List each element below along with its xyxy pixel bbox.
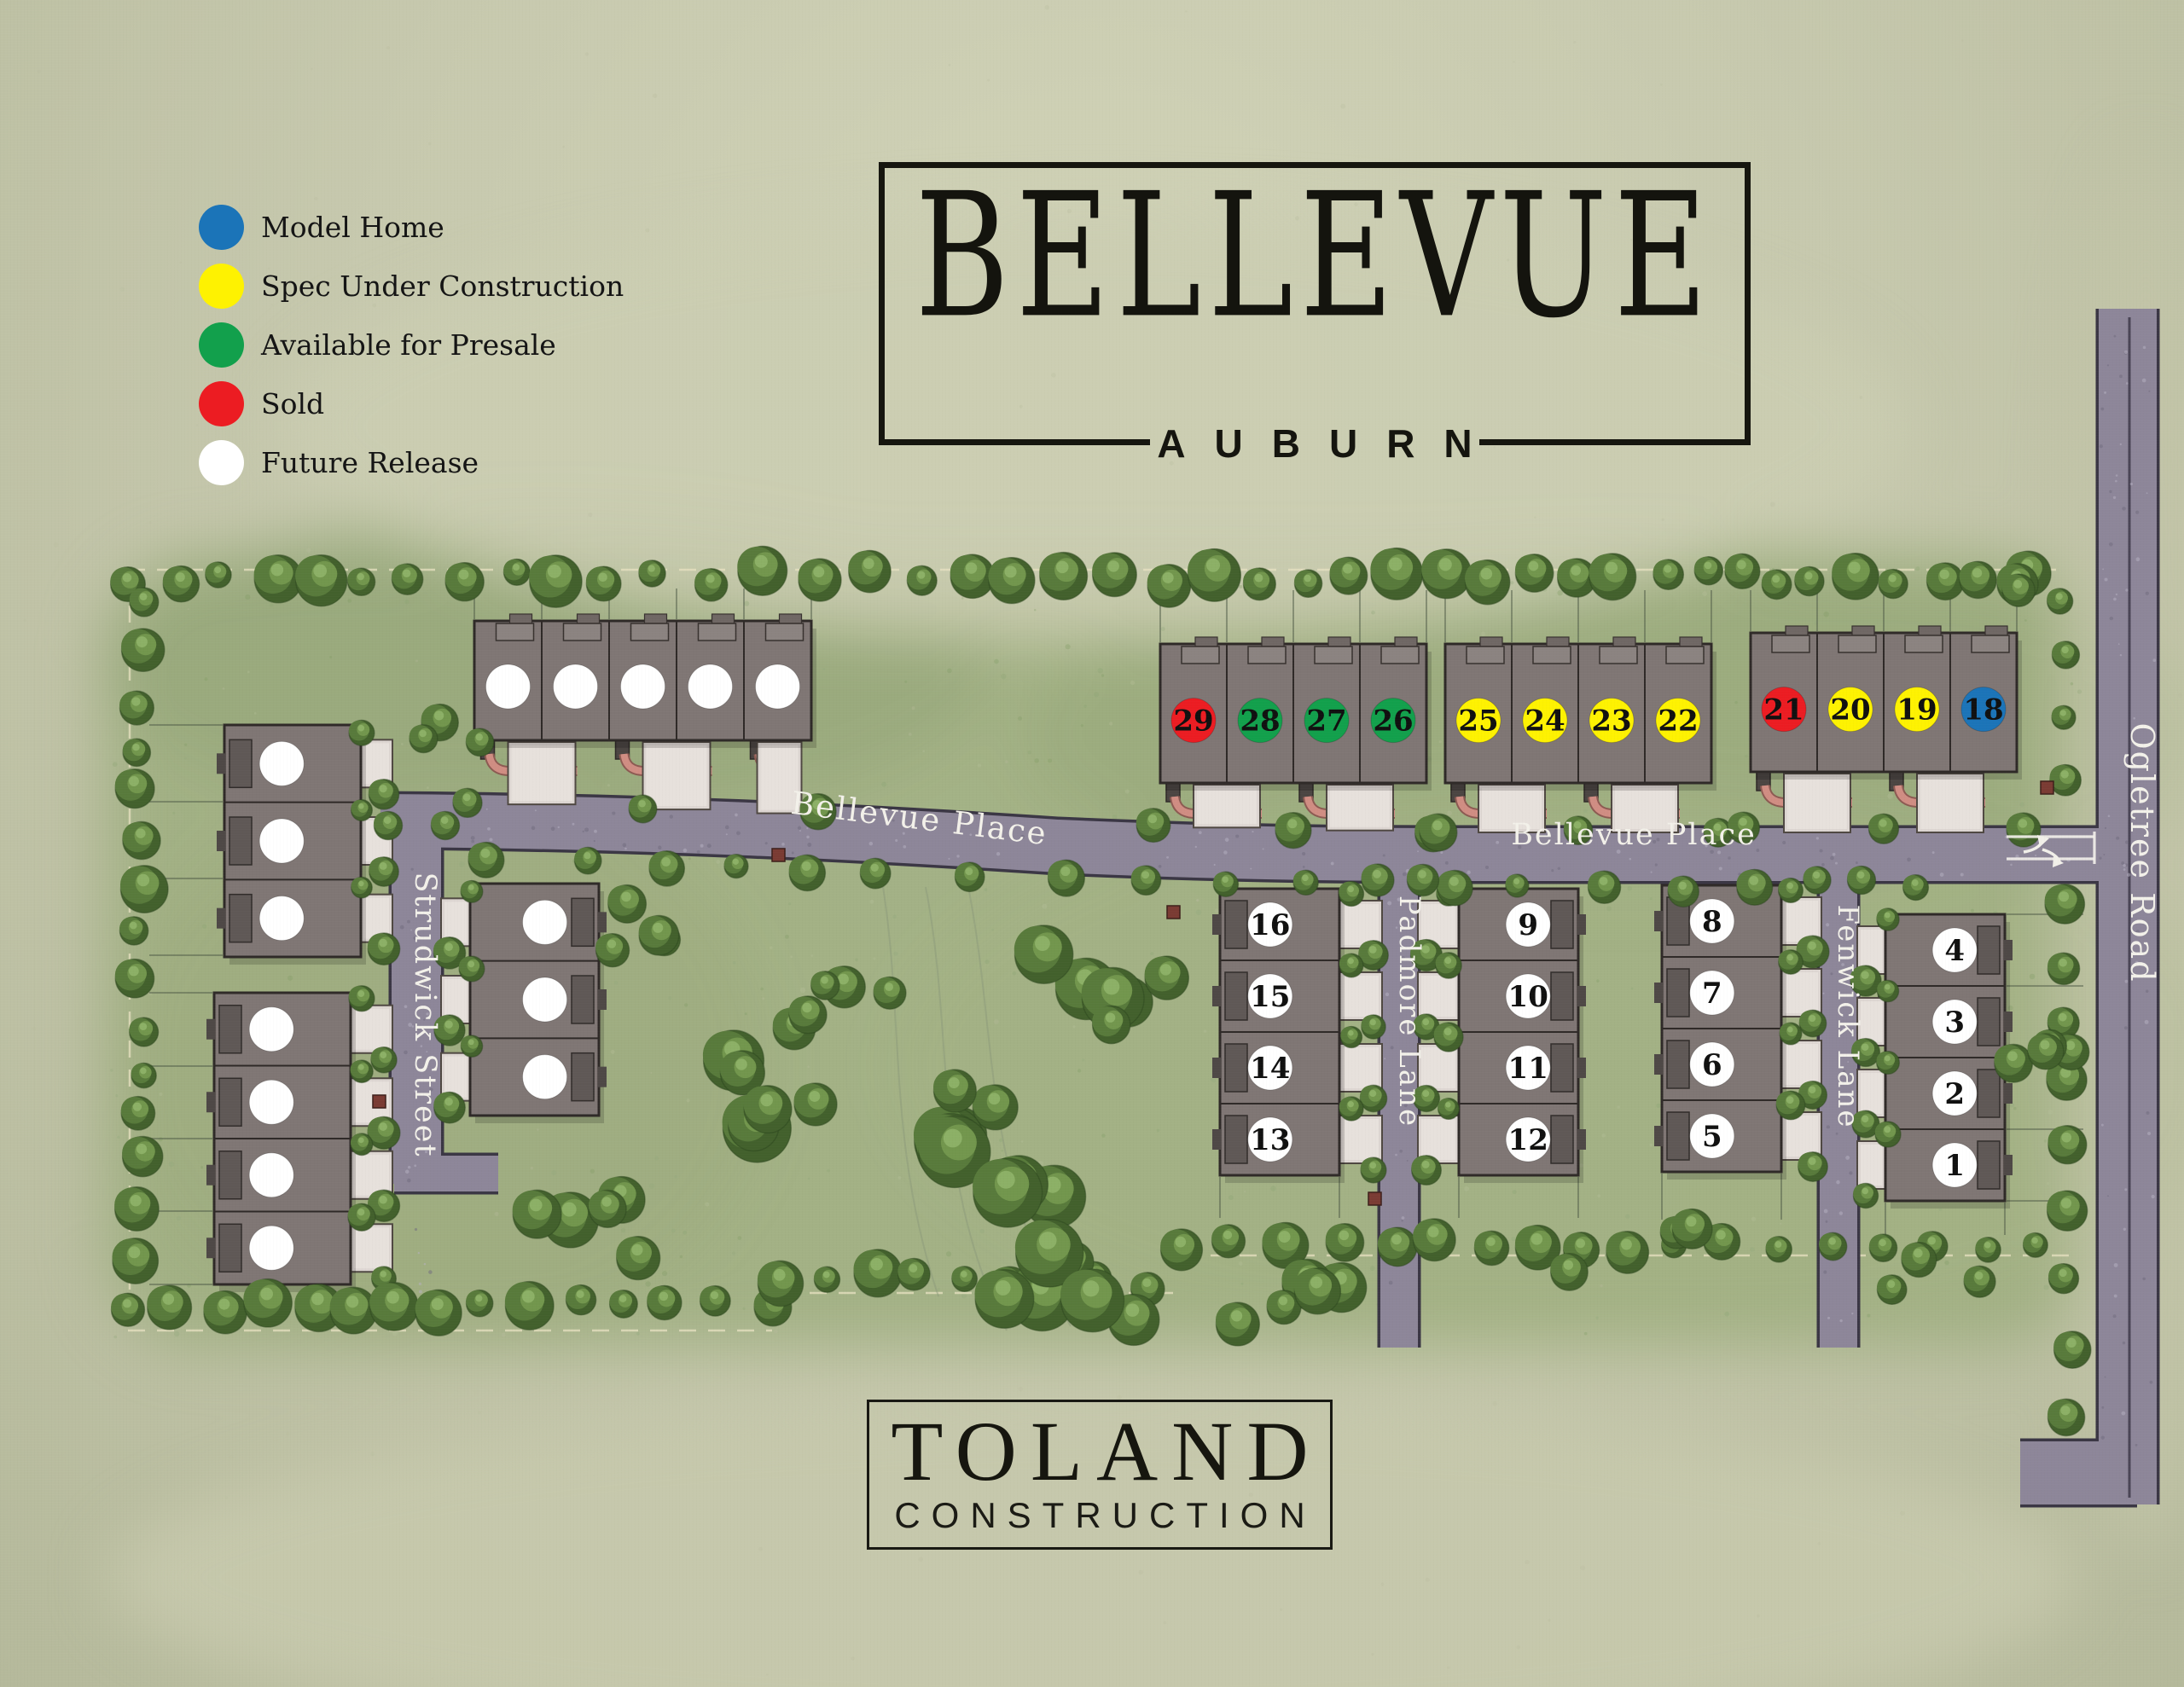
future-lot-marker[interactable] — [523, 900, 567, 944]
legend-label-model: Model Home — [261, 211, 444, 244]
utility-box — [772, 849, 785, 861]
tree — [163, 566, 200, 602]
tree — [2007, 813, 2041, 847]
tree — [1326, 1224, 1364, 1261]
tree — [1362, 1015, 1385, 1039]
tree — [2053, 1331, 2091, 1368]
tree — [1339, 882, 1363, 907]
tree — [1060, 1269, 1124, 1332]
builder-name: TOLAND — [869, 1406, 1330, 1498]
tree — [1243, 568, 1275, 600]
legend-swatch-future-icon — [199, 440, 244, 485]
builder-division: CONSTRUCTION — [869, 1495, 1330, 1536]
legend-swatch-sold-icon — [199, 381, 244, 426]
tree — [1294, 570, 1322, 597]
lot-number: 1 — [1944, 1149, 1965, 1183]
tree — [1780, 1023, 1802, 1045]
tree — [130, 588, 159, 617]
lot-18-marker[interactable]: 18 — [1961, 687, 2006, 732]
tree — [1293, 870, 1318, 895]
lot-22-marker[interactable]: 22 — [1656, 699, 1700, 743]
future-lot-marker[interactable] — [486, 664, 531, 709]
lot-16-marker[interactable]: 16 — [1248, 902, 1292, 947]
tree — [459, 956, 485, 982]
tree — [1799, 1010, 1827, 1036]
tree — [647, 1285, 682, 1319]
tree — [1411, 1156, 1441, 1186]
lot-number: 19 — [1896, 693, 1937, 728]
future-lot-marker[interactable] — [756, 664, 800, 709]
tree — [952, 1267, 978, 1292]
legend-item-spec: Spec Under Construction — [199, 257, 624, 316]
tree — [349, 720, 375, 745]
tree — [1606, 1232, 1648, 1273]
future-lot-marker[interactable] — [621, 664, 665, 709]
lot-3-marker[interactable]: 3 — [1932, 1000, 1977, 1044]
tree — [1902, 1243, 1937, 1278]
tree — [121, 1097, 155, 1130]
lot-25-marker[interactable]: 25 — [1456, 699, 1501, 743]
tree — [503, 559, 530, 586]
lot-11-marker[interactable]: 11 — [1506, 1046, 1550, 1090]
tree — [2047, 1191, 2088, 1231]
tree — [1370, 548, 1422, 600]
lot-23-marker[interactable]: 23 — [1589, 699, 1634, 743]
lot-28-marker[interactable]: 28 — [1238, 699, 1282, 743]
tree — [1362, 864, 1394, 896]
tree — [1779, 950, 1804, 974]
tree — [1766, 1237, 1792, 1262]
tree — [461, 1035, 482, 1057]
bldg-16-13: 16151413 — [1212, 889, 1345, 1183]
tree — [1725, 554, 1760, 588]
tree — [112, 1238, 158, 1284]
tree — [860, 858, 891, 889]
tree — [1694, 557, 1722, 585]
future-lot-marker[interactable] — [259, 896, 304, 941]
tree — [1762, 570, 1792, 600]
tree — [1421, 549, 1471, 599]
future-lot-marker[interactable] — [259, 819, 304, 863]
bldg-future-north — [474, 614, 816, 748]
tree — [114, 1187, 159, 1231]
tree — [348, 1203, 375, 1231]
lot-number: 16 — [1250, 908, 1290, 942]
tree — [973, 1158, 1043, 1227]
tree — [700, 1286, 730, 1316]
tree — [639, 915, 679, 955]
lot-6-marker[interactable]: 6 — [1690, 1042, 1734, 1087]
tree — [1868, 814, 1898, 843]
bldg-25-22: 25242322 — [1445, 637, 1716, 791]
tree — [2047, 1399, 2085, 1435]
lot-number: 25 — [1458, 704, 1498, 739]
tree — [1465, 560, 1510, 605]
tree — [758, 1261, 804, 1306]
tree — [1794, 566, 1824, 595]
tree — [369, 780, 399, 809]
bldg-future-west-b — [206, 993, 356, 1292]
lot-8-marker[interactable]: 8 — [1690, 899, 1734, 943]
lot-number: 14 — [1250, 1052, 1290, 1086]
future-lot-marker[interactable] — [523, 1055, 567, 1099]
tree — [119, 691, 154, 725]
tree — [466, 728, 494, 756]
lot-number: 3 — [1944, 1006, 1965, 1040]
lot-15-marker[interactable]: 15 — [1248, 974, 1292, 1018]
tree — [1213, 872, 1238, 896]
tree — [505, 1282, 554, 1330]
lot-10-marker[interactable]: 10 — [1506, 974, 1550, 1018]
tree — [115, 769, 154, 809]
tree — [468, 843, 504, 878]
lot-number: 7 — [1702, 977, 1722, 1011]
tree — [1407, 864, 1438, 896]
tree — [1877, 908, 1899, 930]
tree — [453, 788, 482, 817]
tree — [1976, 1238, 2001, 1262]
tree — [254, 555, 303, 603]
tree — [2052, 705, 2076, 729]
tree — [1776, 1091, 1805, 1119]
tree — [147, 1285, 191, 1330]
lot-29-marker[interactable]: 29 — [1171, 699, 1216, 743]
tree — [2050, 765, 2082, 796]
tree — [415, 1290, 462, 1336]
lot-4-marker[interactable]: 4 — [1932, 928, 1977, 972]
tree — [1902, 875, 1928, 901]
tree — [2048, 1264, 2078, 1294]
tree — [2045, 884, 2085, 924]
tree — [351, 800, 372, 821]
tree — [1294, 1268, 1340, 1314]
tree — [1160, 1229, 1202, 1271]
tree — [2002, 574, 2036, 606]
utility-box — [373, 1095, 386, 1108]
tree — [566, 1285, 596, 1315]
legend: Model HomeSpec Under ConstructionAvailab… — [199, 198, 624, 492]
future-lot-marker[interactable] — [249, 1080, 293, 1124]
tree — [1420, 814, 1457, 851]
lot-27-marker[interactable]: 27 — [1304, 699, 1349, 743]
tree — [1653, 559, 1684, 589]
lot-20-marker[interactable]: 20 — [1828, 687, 1873, 732]
tree — [2052, 641, 2079, 669]
tree — [1875, 1122, 1901, 1147]
street-label-bellevue-place-east: Bellevue Place — [1511, 818, 1757, 852]
bldg-29-26: 29282726 — [1160, 637, 1432, 791]
tree — [349, 986, 375, 1012]
tree — [1926, 563, 1964, 600]
lot-7-marker[interactable]: 7 — [1690, 971, 1734, 1015]
lot-number: 29 — [1173, 704, 1213, 739]
tree — [1964, 1266, 1995, 1297]
tree — [1147, 565, 1191, 607]
tree — [1877, 980, 1898, 1001]
tree — [1330, 557, 1368, 594]
tree — [1879, 570, 1908, 599]
community-title-box: BELLEVUE AUBURN — [879, 162, 1751, 445]
legend-swatch-presale-icon — [199, 322, 244, 368]
tree — [586, 566, 621, 601]
bldg-9-12: 9101112 — [1459, 889, 1586, 1183]
tree — [295, 555, 347, 606]
legend-swatch-spec-icon — [199, 264, 244, 309]
lot-number: 8 — [1702, 905, 1722, 939]
tree — [1819, 1232, 1847, 1260]
tree — [2047, 588, 2072, 614]
tree — [814, 1267, 839, 1292]
tree — [724, 855, 748, 878]
tree — [1474, 1231, 1509, 1265]
future-lot-marker[interactable] — [249, 1226, 293, 1270]
tree — [206, 562, 232, 588]
community-name: BELLEVUE — [879, 158, 1751, 357]
tree — [529, 555, 582, 607]
tree — [122, 1136, 163, 1176]
tree — [120, 866, 168, 913]
lot-12-marker[interactable]: 12 — [1506, 1117, 1550, 1162]
tree — [639, 560, 666, 587]
tree — [1275, 813, 1311, 849]
tree — [988, 558, 1035, 604]
tree — [121, 629, 165, 671]
tree — [1847, 867, 1875, 895]
tree — [1039, 553, 1087, 600]
lot-number: 28 — [1240, 704, 1280, 739]
legend-item-presale: Available for Presale — [199, 316, 624, 374]
tree — [1339, 1097, 1363, 1121]
tree — [1798, 1152, 1827, 1181]
lot-number: 24 — [1525, 704, 1565, 739]
tree — [1672, 1209, 1712, 1249]
tree — [794, 1083, 837, 1126]
tree — [371, 1047, 397, 1073]
site-plan-page: 2928272625242322212019181615141391011128… — [0, 0, 2184, 1687]
future-lot-marker[interactable] — [249, 1153, 293, 1197]
lot-2-marker[interactable]: 2 — [1932, 1071, 1977, 1116]
tree — [1804, 867, 1831, 894]
tree — [897, 1258, 930, 1290]
tree — [955, 862, 985, 891]
tree — [737, 546, 787, 595]
tree — [445, 563, 484, 601]
tree — [950, 554, 995, 598]
tree — [1340, 1027, 1362, 1048]
utility-box — [1368, 1192, 1381, 1205]
tree — [347, 568, 375, 595]
street-label-ogletree-road: Ogletree Road — [2123, 722, 2161, 983]
lot-26-marker[interactable]: 26 — [1371, 699, 1415, 743]
tree — [607, 885, 646, 924]
street-label-padmore-lane: Padmore Lane — [1392, 896, 1426, 1128]
tree — [1506, 874, 1529, 897]
legend-item-model: Model Home — [199, 198, 624, 257]
tree — [789, 855, 826, 890]
legend-label-sold: Sold — [261, 387, 324, 420]
tree — [1853, 1183, 1878, 1208]
tree — [1588, 871, 1620, 903]
tree — [1378, 1227, 1417, 1267]
lot-number: 18 — [1963, 693, 2003, 728]
tree — [1832, 554, 1879, 600]
tree — [513, 1190, 561, 1238]
tree — [243, 1279, 292, 1327]
tree — [616, 1237, 659, 1280]
tree — [694, 569, 728, 601]
street-label-fenwick-lane: Fenwick Lane — [1831, 904, 1865, 1128]
tree — [466, 1290, 493, 1317]
tree — [629, 795, 657, 823]
legend-item-sold: Sold — [199, 374, 624, 433]
future-lot-marker[interactable] — [523, 977, 567, 1022]
tree — [1145, 956, 1189, 1000]
lot-9-marker[interactable]: 9 — [1506, 902, 1550, 947]
lot-14-marker[interactable]: 14 — [1248, 1046, 1292, 1090]
lot-24-marker[interactable]: 24 — [1523, 699, 1567, 743]
tree — [589, 1191, 626, 1228]
tree — [907, 565, 937, 595]
tree — [119, 917, 148, 945]
tree — [810, 971, 839, 1000]
tree — [1131, 866, 1161, 895]
legend-label-spec: Spec Under Construction — [261, 270, 624, 303]
bldg-4-1: 4321 — [1885, 914, 2013, 1209]
community-location: AUBURN — [879, 420, 1751, 467]
tree — [1014, 925, 1073, 983]
future-lot-marker[interactable] — [259, 741, 304, 786]
tree — [1413, 1219, 1455, 1261]
tree — [1434, 1023, 1463, 1052]
builder-logo: TOLAND CONSTRUCTION — [867, 1400, 1333, 1550]
tree — [595, 934, 629, 967]
tree — [369, 857, 398, 886]
tree — [874, 977, 906, 1009]
tree — [431, 811, 459, 839]
tree — [351, 1060, 374, 1082]
tree — [123, 739, 151, 766]
legend-label-presale: Available for Presale — [261, 328, 556, 362]
tree — [744, 1086, 792, 1133]
lot-number: 13 — [1250, 1123, 1290, 1157]
tree — [848, 550, 891, 592]
lot-1-marker[interactable]: 1 — [1932, 1143, 1977, 1187]
tree — [1876, 1052, 1899, 1075]
bldg-future-east-strudwick — [470, 884, 607, 1123]
lot-number: 10 — [1508, 980, 1548, 1014]
tree — [1550, 1254, 1588, 1290]
tree — [203, 1291, 247, 1334]
lot-number: 5 — [1702, 1120, 1722, 1154]
lot-number: 26 — [1373, 704, 1413, 739]
tree — [1877, 1275, 1907, 1304]
tree — [129, 1017, 158, 1046]
tree — [1668, 876, 1699, 907]
tree — [1339, 954, 1363, 977]
utility-box — [2041, 781, 2053, 794]
tree — [1048, 860, 1084, 896]
tree — [1360, 1085, 1387, 1111]
tree — [1438, 1099, 1459, 1120]
tree — [351, 1133, 373, 1156]
lot-number: 27 — [1306, 704, 1346, 739]
tree — [122, 821, 160, 859]
lot-number: 2 — [1944, 1077, 1965, 1111]
lot-19-marker[interactable]: 19 — [1895, 687, 1939, 732]
bldg-8-5: 8765 — [1654, 885, 1786, 1180]
tree — [854, 1249, 902, 1297]
tree — [1188, 549, 1240, 602]
tree — [131, 1063, 156, 1087]
tree — [1136, 809, 1170, 843]
legend-item-future: Future Release — [199, 433, 624, 492]
tree — [2028, 1034, 2064, 1070]
tree — [1994, 1044, 2032, 1082]
lot-number: 4 — [1944, 934, 1965, 968]
tree — [111, 1293, 144, 1326]
tree — [799, 559, 841, 601]
future-lot-marker[interactable] — [249, 1007, 293, 1052]
lot-number: 22 — [1658, 704, 1698, 739]
tree — [368, 933, 400, 965]
street-label-strudwick-street: Strudwick Street — [408, 872, 442, 1157]
tree — [1736, 869, 1772, 905]
lot-number: 20 — [1830, 693, 1870, 728]
tree — [2023, 1233, 2047, 1258]
utility-box — [1167, 906, 1180, 919]
tree — [1778, 878, 1803, 903]
tree — [609, 1290, 637, 1319]
tree — [2047, 1126, 2086, 1164]
bldg-future-west-a — [217, 725, 366, 965]
tree — [351, 877, 373, 897]
future-lot-marker[interactable] — [554, 664, 598, 709]
future-lot-marker[interactable] — [688, 664, 733, 709]
lot-number: 23 — [1591, 704, 1631, 739]
lot-number: 6 — [1702, 1048, 1722, 1082]
bldg-21-18: 21201918 — [1751, 626, 2022, 780]
tree — [115, 959, 154, 998]
tree — [1869, 1234, 1897, 1261]
tree — [1216, 1302, 1259, 1346]
tree — [1092, 553, 1136, 597]
tree — [1211, 1225, 1245, 1258]
lot-21-marker[interactable]: 21 — [1762, 687, 1806, 732]
tree — [461, 881, 483, 903]
tree — [1960, 561, 1997, 598]
legend-swatch-model-icon — [199, 205, 244, 250]
lot-number: 9 — [1518, 908, 1538, 942]
tree — [1515, 554, 1554, 592]
tree — [1361, 1157, 1386, 1183]
tree — [1437, 870, 1472, 905]
tree — [1589, 554, 1635, 600]
lot-5-marker[interactable]: 5 — [1690, 1114, 1734, 1158]
tree — [2047, 953, 2080, 984]
lot-13-marker[interactable]: 13 — [1248, 1117, 1292, 1162]
tree — [369, 1283, 418, 1330]
tree — [974, 1270, 1033, 1329]
tree — [1092, 1006, 1130, 1043]
tree — [374, 811, 402, 839]
tree — [409, 725, 438, 753]
tree — [392, 564, 423, 594]
tree — [933, 1070, 976, 1112]
lot-number: 21 — [1763, 693, 1804, 728]
lot-number: 15 — [1250, 980, 1290, 1014]
tree — [649, 851, 685, 886]
tree — [789, 996, 827, 1034]
